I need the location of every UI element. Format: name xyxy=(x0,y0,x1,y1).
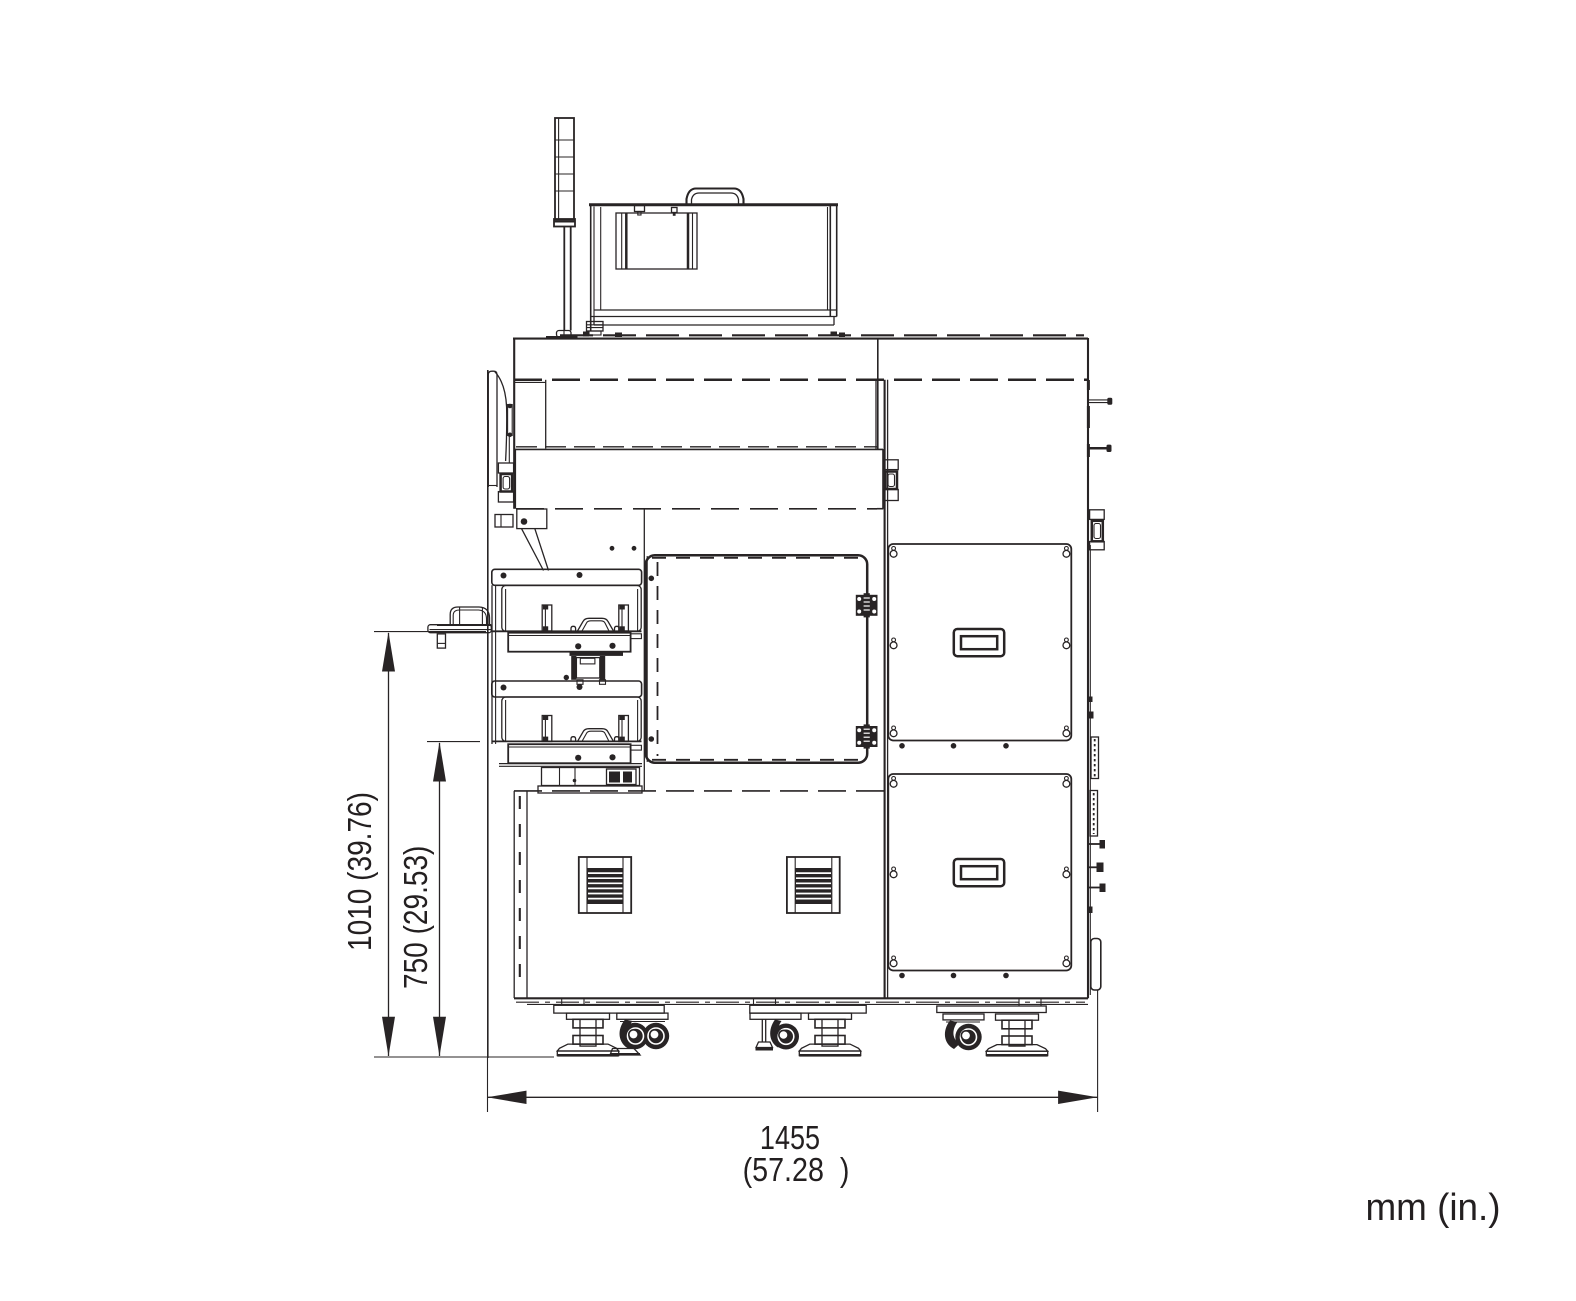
svg-text:1010 (39.76): 1010 (39.76) xyxy=(342,792,379,951)
svg-text:750 (29.53): 750 (29.53) xyxy=(398,846,435,989)
svg-text:mm (in.): mm (in.) xyxy=(1365,1185,1500,1228)
svg-text:(57.28 ): (57.28 ) xyxy=(743,1151,850,1188)
